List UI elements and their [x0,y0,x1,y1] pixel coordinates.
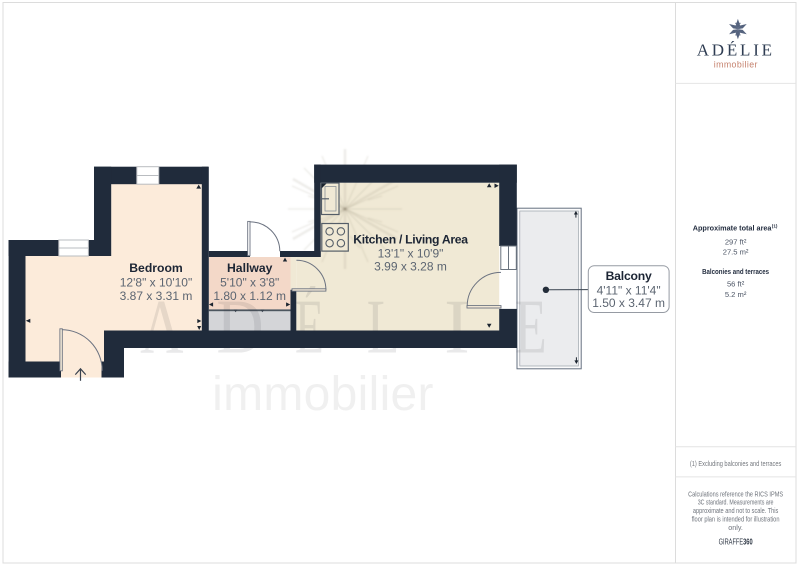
svg-text:1.80 x 1.12 m: 1.80 x 1.12 m [213,289,286,303]
svg-text:immobilier: immobilier [212,368,434,421]
svg-text:Kitchen / Living Area: Kitchen / Living Area [353,232,468,246]
svg-text:Hallway: Hallway [227,261,273,275]
svg-text:3.99 x 3.28 m: 3.99 x 3.28 m [374,259,447,273]
svg-text:56 ft²: 56 ft² [727,280,745,289]
svg-text:1.50 x 3.47 m: 1.50 x 3.47 m [592,296,665,310]
svg-text:3.87 x 3.31 m: 3.87 x 3.31 m [120,289,193,303]
svg-text:I: I [444,283,470,369]
svg-text:only.: only. [728,523,743,532]
svg-text:L: L [367,285,400,370]
svg-text:(1) Excluding balconies and te: (1) Excluding balconies and terraces [690,459,782,468]
svg-text:297 ft²: 297 ft² [725,238,747,247]
svg-text:(1): (1) [772,224,778,229]
svg-text:Balconies and terraces: Balconies and terraces [702,267,769,276]
svg-text:5'10" x 3'8": 5'10" x 3'8" [220,276,279,290]
svg-text:É: É [295,284,324,369]
svg-text:immobilier: immobilier [714,60,758,70]
svg-text:Approximate total area: Approximate total area [693,224,773,233]
svg-text:Balcony: Balcony [606,269,652,283]
svg-text:12'8" x 10'10": 12'8" x 10'10" [120,276,193,290]
svg-text:ADÉLIE: ADÉLIE [697,41,775,60]
svg-text:E: E [515,285,547,370]
svg-text:Bedroom: Bedroom [129,261,183,275]
svg-text:5.2 m²: 5.2 m² [725,290,747,299]
svg-text:27.5 m²: 27.5 m² [723,248,749,257]
svg-text:GIRAFFE360: GIRAFFE360 [719,536,753,546]
